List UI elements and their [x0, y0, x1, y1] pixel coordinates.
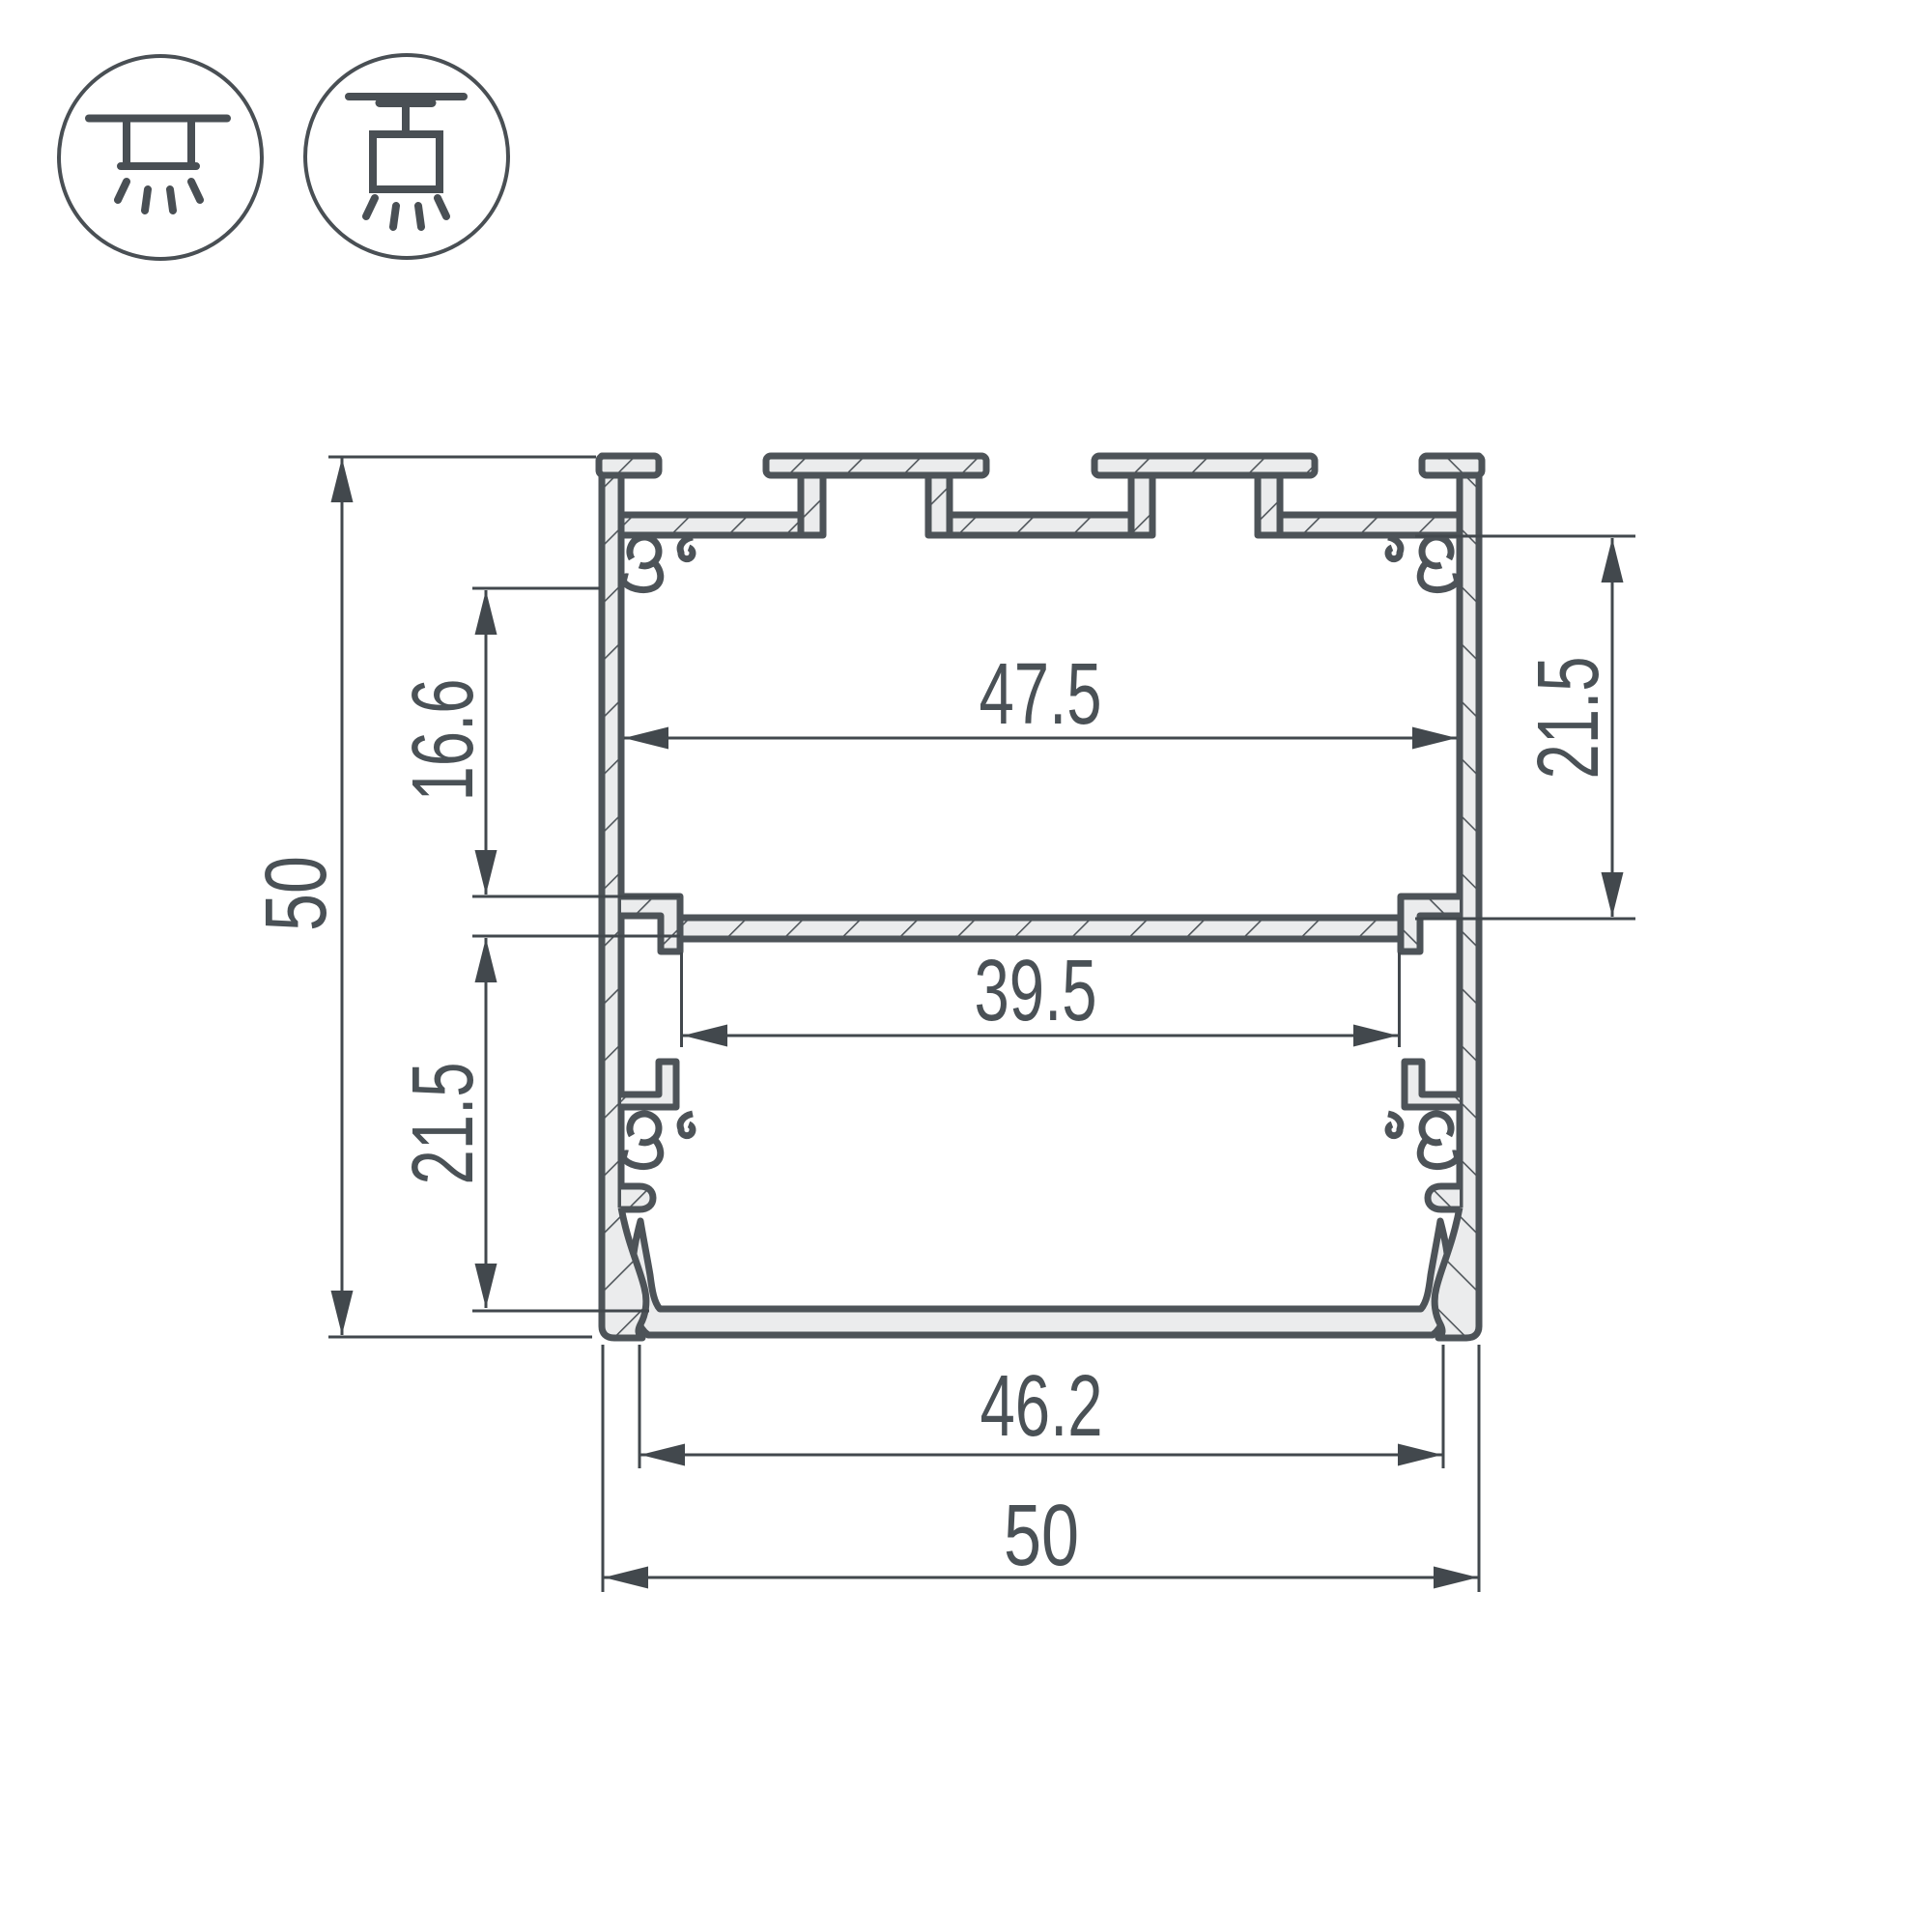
svg-text:46.2: 46.2: [980, 1358, 1103, 1455]
svg-text:16.6: 16.6: [395, 679, 492, 802]
svg-text:21.5: 21.5: [395, 1063, 492, 1185]
svg-text:21.5: 21.5: [1520, 657, 1617, 780]
svg-text:50: 50: [1004, 1488, 1079, 1584]
svg-text:47.5: 47.5: [980, 646, 1102, 743]
svg-text:39.5: 39.5: [975, 943, 1097, 1039]
svg-text:50: 50: [248, 856, 345, 931]
